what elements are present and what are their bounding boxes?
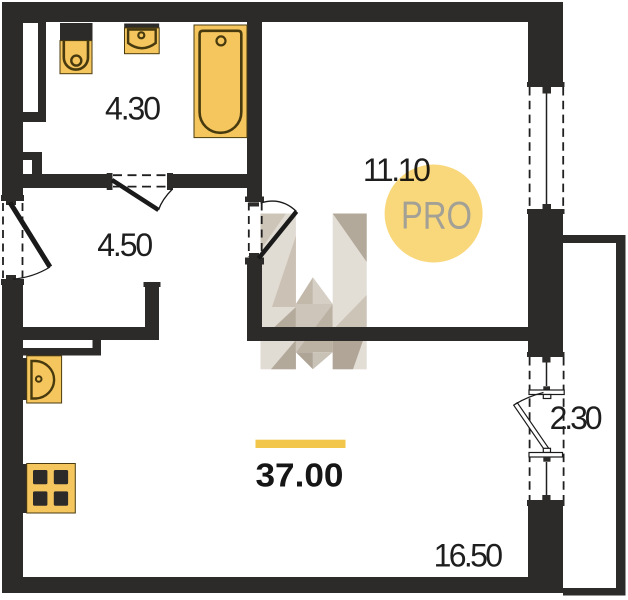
svg-text:4.30: 4.30 [105,91,161,127]
svg-text:PRO: PRO [401,194,472,237]
svg-text:16.50: 16.50 [434,538,504,574]
svg-text:37.00: 37.00 [256,457,344,494]
svg-text:2.30: 2.30 [550,400,603,436]
svg-text:4.50: 4.50 [97,227,153,263]
